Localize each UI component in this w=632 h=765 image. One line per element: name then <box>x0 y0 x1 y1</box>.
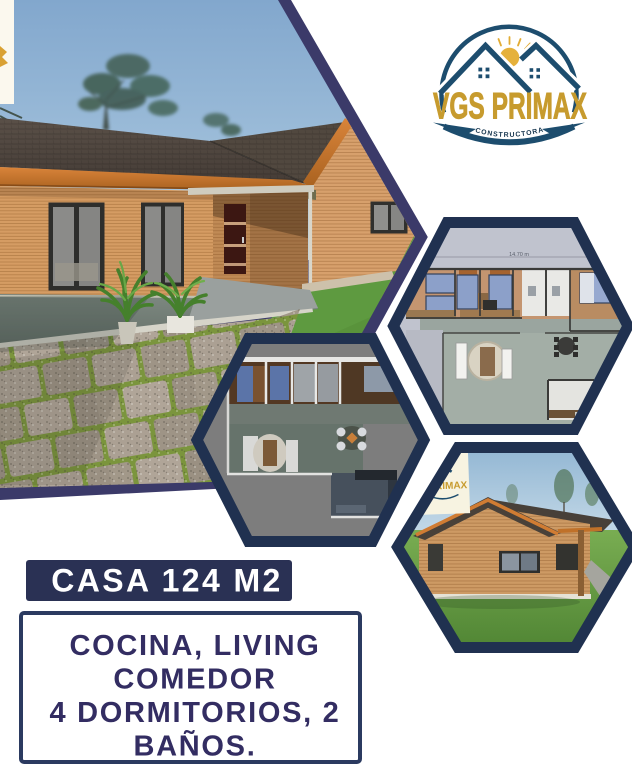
svg-text:COCINA, LIVING: COCINA, LIVING <box>70 630 321 662</box>
svg-text:VGS PRIMAX: VGS PRIMAX <box>433 86 587 127</box>
svg-text:COMEDOR: COMEDOR <box>113 664 276 696</box>
svg-text:14.70 m: 14.70 m <box>509 252 529 258</box>
svg-text:CASA 124 M2: CASA 124 M2 <box>51 563 283 599</box>
svg-text:4 DORMITORIOS, 2: 4 DORMITORIOS, 2 <box>50 697 341 729</box>
svg-text:BAÑOS.: BAÑOS. <box>134 729 257 763</box>
